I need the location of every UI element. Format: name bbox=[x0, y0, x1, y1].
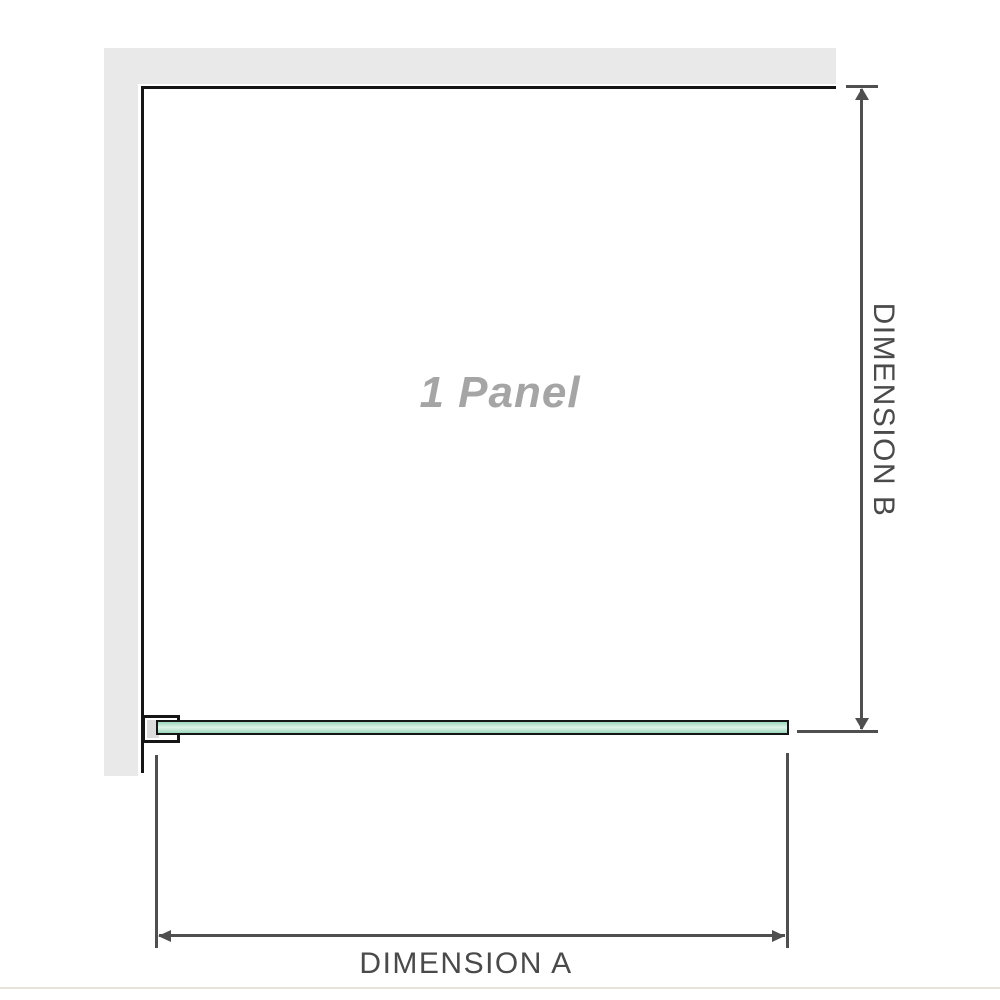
dimension-b-line bbox=[860, 89, 863, 729]
wall-top bbox=[104, 48, 836, 84]
glass-panel bbox=[156, 720, 789, 735]
arrow-down-icon bbox=[855, 718, 869, 730]
dimension-a-extension-right bbox=[786, 753, 789, 948]
dimension-a-label: DIMENSION A bbox=[359, 947, 572, 981]
dimension-b-label: DIMENSION B bbox=[866, 303, 900, 518]
arrow-up-icon bbox=[855, 88, 869, 100]
dimension-b-tick-bottom bbox=[797, 730, 878, 733]
wall-edge-top-line bbox=[141, 86, 836, 89]
dimension-diagram: 1 Panel DIMENSION B DIMENSION A bbox=[0, 0, 1000, 1000]
arrow-left-icon bbox=[158, 930, 171, 942]
dimension-a-line bbox=[159, 934, 785, 937]
dimension-a-extension-left bbox=[155, 755, 158, 948]
panel-count-label: 1 Panel bbox=[330, 368, 670, 418]
image-bottom-edge bbox=[0, 987, 1000, 989]
arrow-right-icon bbox=[772, 930, 785, 942]
wall-edge-left-line bbox=[141, 86, 144, 773]
wall-left bbox=[104, 48, 138, 776]
